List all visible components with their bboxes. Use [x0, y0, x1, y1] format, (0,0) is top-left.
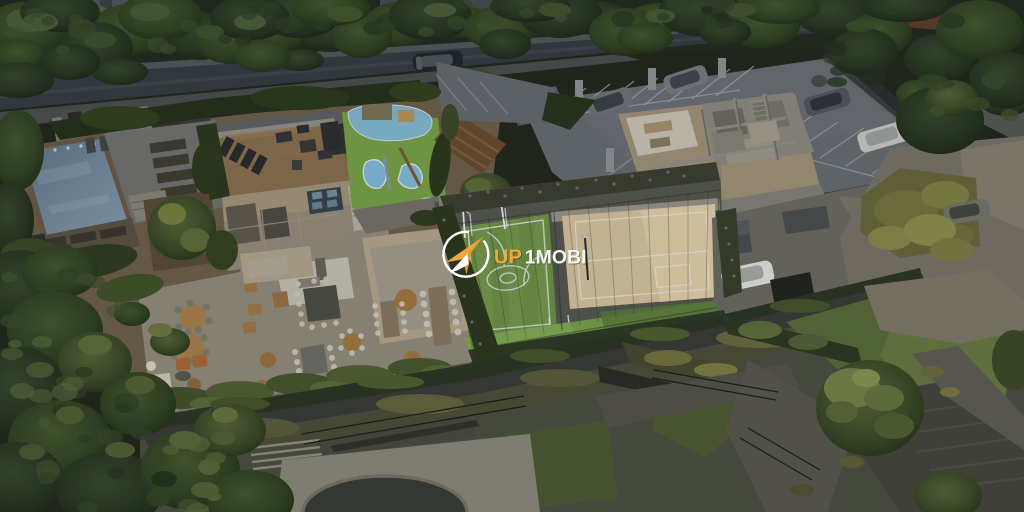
- svg-text:UP: UP: [494, 247, 522, 269]
- svg-text:1MOBI: 1MOBI: [525, 247, 587, 269]
